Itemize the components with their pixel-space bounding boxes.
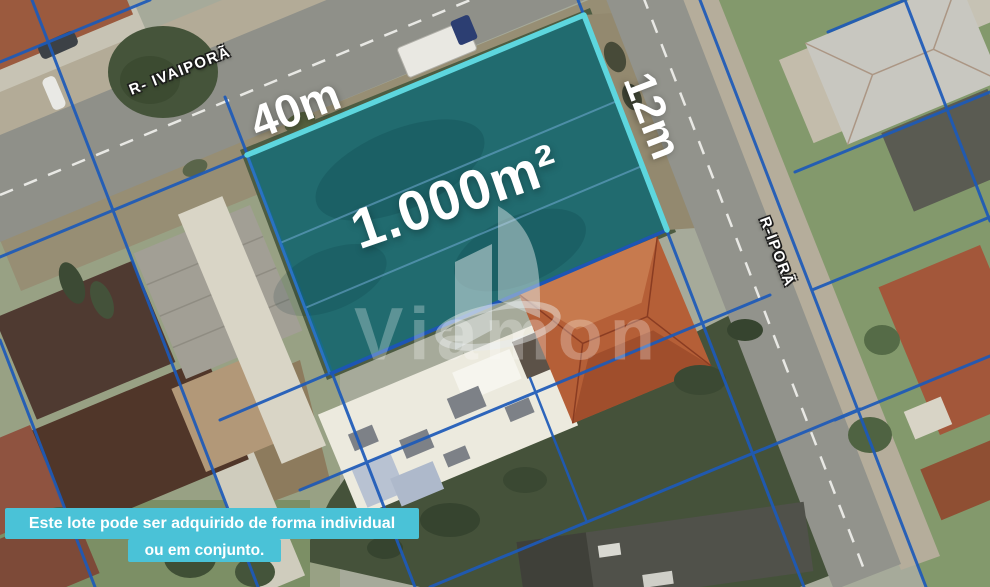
- caption-line-2: ou em conjunto.: [128, 539, 281, 562]
- real-estate-aerial-ad: Viamon R- IVAIPORÃ R-IPORÃ 40m 12m 1.000…: [0, 0, 990, 587]
- caption-line-1: Este lote pode ser adquirido de forma in…: [5, 508, 419, 539]
- watermark-text: Viamon: [354, 292, 662, 377]
